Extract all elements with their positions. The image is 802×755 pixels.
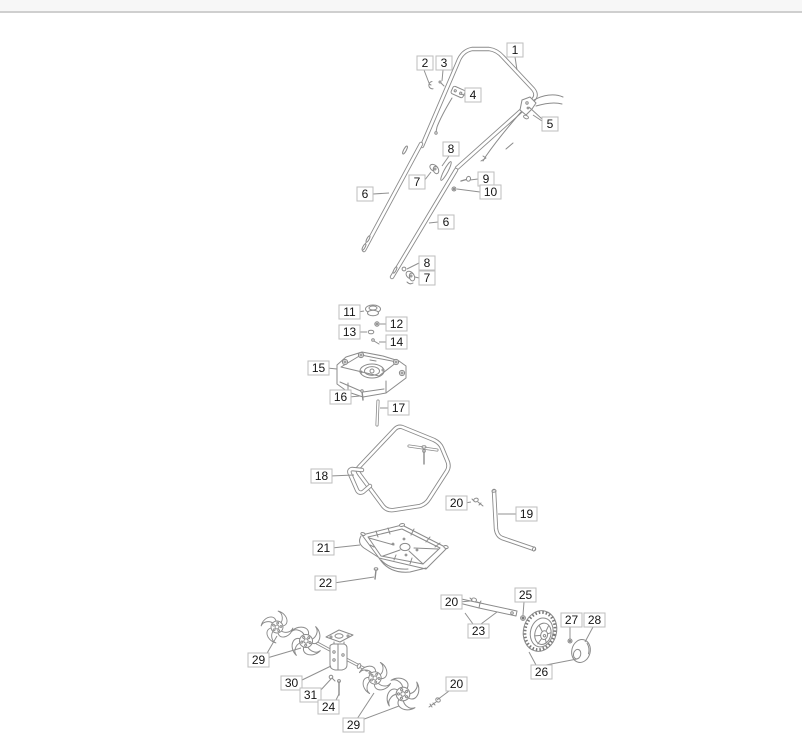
callout-number: 4 bbox=[470, 88, 477, 102]
callout-number: 31 bbox=[304, 688, 318, 702]
callout-number: 28 bbox=[588, 613, 602, 627]
part-callout-15[interactable]: 15 bbox=[308, 361, 329, 375]
leader-line-29 bbox=[357, 693, 374, 719]
part-callout-14[interactable]: 14 bbox=[386, 335, 407, 349]
part-callout-16[interactable]: 16 bbox=[330, 390, 351, 404]
part-callout-19[interactable]: 19 bbox=[516, 507, 537, 521]
leader-line-23 bbox=[465, 613, 473, 624]
part-callout-20[interactable]: 20 bbox=[446, 677, 467, 691]
part-21-cover bbox=[360, 523, 449, 572]
part-17-rod bbox=[377, 401, 378, 425]
callout-number: 14 bbox=[390, 335, 404, 349]
callout-number: 20 bbox=[450, 677, 464, 691]
parts-diagram-canvas: 1234567891068711121314151617182019212220… bbox=[0, 0, 802, 755]
part-callout-4[interactable]: 4 bbox=[465, 88, 481, 102]
part-callout-18[interactable]: 18 bbox=[311, 469, 332, 483]
part-10-nut bbox=[452, 187, 456, 191]
callout-number: 30 bbox=[285, 676, 299, 690]
part-callout-26[interactable]: 26 bbox=[531, 665, 552, 679]
leader-line-8 bbox=[407, 263, 419, 269]
part-callout-8[interactable]: 8 bbox=[443, 142, 459, 156]
callout-number: 29 bbox=[347, 718, 361, 732]
part-callout-3[interactable]: 3 bbox=[436, 56, 452, 70]
callout-number: 20 bbox=[450, 496, 464, 510]
callout-number: 10 bbox=[484, 185, 498, 199]
part-14-screw bbox=[372, 339, 379, 344]
part-callout-30[interactable]: 30 bbox=[281, 676, 302, 690]
leader-line-6 bbox=[429, 222, 438, 223]
part-callout-2[interactable]: 2 bbox=[417, 56, 433, 70]
callout-number: 25 bbox=[519, 588, 533, 602]
callout-number: 8 bbox=[424, 256, 431, 270]
callout-number: 3 bbox=[441, 56, 448, 70]
leader-line-26 bbox=[529, 652, 536, 665]
part-callout-5[interactable]: 5 bbox=[542, 117, 558, 131]
part-3-screw bbox=[439, 81, 444, 86]
part-callout-6[interactable]: 6 bbox=[438, 215, 454, 229]
callout-number: 7 bbox=[424, 271, 431, 285]
callout-number: 9 bbox=[483, 172, 490, 186]
callout-number: 5 bbox=[547, 117, 554, 131]
part-callout-9[interactable]: 9 bbox=[478, 172, 494, 186]
part-callout-17[interactable]: 17 bbox=[388, 401, 409, 415]
callout-number: 21 bbox=[317, 541, 331, 555]
callout-number: 22 bbox=[319, 576, 333, 590]
part-7-clamp-knob-lower bbox=[405, 270, 416, 284]
callout-number: 12 bbox=[390, 317, 404, 331]
leader-line-3 bbox=[442, 70, 443, 81]
leader-line-10 bbox=[457, 189, 480, 192]
callout-number: 18 bbox=[315, 469, 329, 483]
part-28-hub-cap bbox=[569, 638, 592, 665]
callout-number: 20 bbox=[445, 595, 459, 609]
part-11-cap bbox=[366, 305, 381, 316]
part-20-hook-bolt-a bbox=[472, 498, 483, 506]
part-12-nut bbox=[375, 322, 379, 326]
part-callout-29[interactable]: 29 bbox=[248, 653, 269, 667]
callout-number: 7 bbox=[414, 175, 421, 189]
part-callout-6[interactable]: 6 bbox=[357, 187, 373, 201]
leader-line-29 bbox=[267, 648, 301, 658]
callout-number: 19 bbox=[520, 507, 534, 521]
callout-number: 23 bbox=[472, 624, 486, 638]
part-callout-1[interactable]: 1 bbox=[507, 43, 523, 57]
part-callout-24[interactable]: 24 bbox=[318, 700, 339, 714]
leader-line-22 bbox=[334, 577, 374, 583]
leader-line-6 bbox=[373, 193, 389, 194]
part-25-washer bbox=[521, 616, 526, 621]
part-13-washer bbox=[368, 330, 374, 334]
part-callout-8[interactable]: 8 bbox=[419, 256, 435, 270]
part-callout-20[interactable]: 20 bbox=[446, 496, 467, 510]
leader-line-7 bbox=[415, 277, 419, 278]
callout-number: 8 bbox=[448, 142, 455, 156]
part-22-pin bbox=[374, 568, 378, 579]
part-26-transport-wheel bbox=[519, 607, 561, 655]
part-callout-13[interactable]: 13 bbox=[339, 325, 360, 339]
callout-number: 11 bbox=[343, 305, 356, 319]
callout-number: 26 bbox=[535, 665, 549, 679]
part-30-gearbox bbox=[317, 630, 371, 674]
part-callout-11[interactable]: 11 bbox=[339, 305, 360, 319]
part-27-bolt bbox=[568, 639, 572, 643]
part-callout-20[interactable]: 20 bbox=[441, 595, 462, 609]
leader-line-9 bbox=[470, 179, 478, 180]
parts-page: { "page": { "topbar": { "height": 13 } }… bbox=[0, 0, 802, 755]
leader-line-23 bbox=[481, 612, 497, 624]
callout-number: 17 bbox=[392, 401, 406, 415]
part-callout-25[interactable]: 25 bbox=[515, 588, 536, 602]
callout-number: 15 bbox=[312, 361, 326, 375]
leader-line-20 bbox=[437, 691, 449, 700]
leader-line-28 bbox=[585, 627, 593, 642]
part-29-tine-b bbox=[282, 617, 330, 665]
part-9-bolt bbox=[461, 176, 471, 182]
part-callout-29[interactable]: 29 bbox=[343, 718, 364, 732]
leader-line-26 bbox=[546, 659, 577, 665]
part-callout-21[interactable]: 21 bbox=[313, 541, 334, 555]
callout-number: 13 bbox=[343, 325, 357, 339]
part-18-guard-loop bbox=[349, 427, 448, 510]
callout-number: 6 bbox=[362, 187, 369, 201]
part-callout-7[interactable]: 7 bbox=[419, 271, 435, 285]
part-callout-23[interactable]: 23 bbox=[468, 624, 489, 638]
part-8-washer-lower bbox=[402, 267, 406, 271]
part-callout-28[interactable]: 28 bbox=[584, 613, 605, 627]
leader-line-21 bbox=[332, 545, 360, 548]
leader-line-25 bbox=[523, 602, 524, 615]
part-2-cable-clip bbox=[429, 82, 433, 89]
callout-number: 24 bbox=[322, 700, 336, 714]
part-24-pin bbox=[338, 680, 341, 695]
callout-number: 27 bbox=[565, 613, 579, 627]
leader-line-29 bbox=[359, 706, 399, 721]
part-callout-10[interactable]: 10 bbox=[480, 185, 501, 199]
part-29-tine-a bbox=[259, 609, 296, 646]
callout-number: 1 bbox=[512, 43, 519, 57]
part-callout-7[interactable]: 7 bbox=[409, 175, 425, 189]
part-callout-22[interactable]: 22 bbox=[315, 576, 336, 590]
callout-number: 6 bbox=[443, 215, 450, 229]
leader-line-2 bbox=[424, 70, 429, 83]
part-callout-27[interactable]: 27 bbox=[561, 613, 582, 627]
callout-number: 16 bbox=[334, 390, 348, 404]
leader-line-30 bbox=[300, 666, 331, 681]
callout-number: 29 bbox=[252, 653, 266, 667]
callout-number: 2 bbox=[422, 56, 429, 70]
part-callout-12[interactable]: 12 bbox=[386, 317, 407, 331]
